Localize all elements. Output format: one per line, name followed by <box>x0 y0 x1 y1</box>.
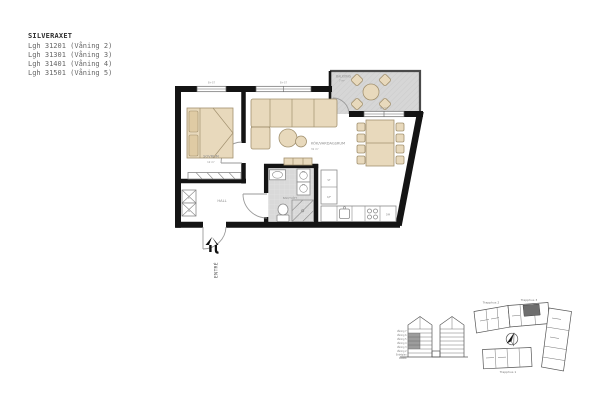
bathroom-door <box>243 194 267 218</box>
floorplan-drawing: BALKONG 7 m² <box>0 0 600 400</box>
window-dim-label: B+S7 <box>208 81 216 85</box>
floor-label: Våning 2 <box>397 350 407 353</box>
floor-label: Våning 3 <box>397 346 407 349</box>
media-bench <box>284 158 312 165</box>
entrance-door <box>203 227 226 249</box>
highlighted-unit <box>523 304 540 316</box>
floor-label: Våning 4 <box>397 342 407 345</box>
bed <box>187 108 233 158</box>
kitchen-counter: DM <box>321 206 396 222</box>
kitchen-tall-cabinets: ST K/F <box>321 170 337 204</box>
entrance-label: ENTRÉ <box>214 262 219 278</box>
floor-label: Våning 7 <box>397 330 407 333</box>
hall-label: HALL <box>217 199 226 203</box>
pillow <box>189 135 198 156</box>
balcony-label: BALKONG <box>336 75 352 79</box>
entrance: ENTRÉ <box>206 237 219 278</box>
building-top-left <box>474 306 510 334</box>
tall-cabinet-label: ST <box>327 178 331 182</box>
north-arrow <box>505 331 520 346</box>
floor-label: Entréplan <box>396 353 407 356</box>
stairwell-3-label: Trapphus 3 <box>520 298 538 302</box>
fridge-freezer-label: K/F <box>327 195 332 199</box>
washbasin <box>270 170 286 180</box>
bedroom-window <box>197 86 226 91</box>
toilet <box>277 204 289 222</box>
dishwasher-label: DM <box>386 213 390 217</box>
bedroom-area-label: 12 m² <box>207 160 215 164</box>
kitchen-living-area-label: 31 m² <box>311 147 319 151</box>
floor-label: Våning 6 <box>397 334 407 337</box>
floor-label: Källare <box>399 357 407 360</box>
washing-machine-label: TM <box>302 171 305 174</box>
elevation-floor-labels: Våning 7 Våning 6 Våning 5 Våning 4 Våni… <box>396 330 407 360</box>
dryer: TT <box>297 182 310 195</box>
window-dim-label: B+S7 <box>280 81 288 85</box>
floor-label: Våning 5 <box>397 338 407 341</box>
livingroom-window <box>256 86 311 91</box>
elevation-diagram: Våning 7 Våning 6 Våning 5 Våning 4 Våni… <box>396 317 468 361</box>
wardrobe-label: G <box>188 209 190 213</box>
balcony: BALKONG 7 m² <box>330 71 420 114</box>
page: SILVERAXET Lgh 31201 (Våning 2) Lgh 3130… <box>0 0 600 400</box>
site-plan: Trapphus 2 Trapphus 3 Trapphus 1 <box>474 298 572 374</box>
entrance-arrow-icon <box>206 237 219 254</box>
washing-machine: TM <box>297 169 310 182</box>
bedroom-wardrobe <box>188 173 241 180</box>
bedroom-label: SOVRUM <box>203 155 219 159</box>
coffee-tables <box>279 129 307 147</box>
dining-table <box>366 120 394 166</box>
pillow <box>189 111 198 132</box>
balcony-table <box>363 84 379 100</box>
hall-closets: L G <box>182 190 196 216</box>
bathroom: TM TT BAD/TVÄTT <box>268 168 313 221</box>
stairwell-2-label: Trapphus 2 <box>482 301 500 305</box>
window-dim-label: B+S7 <box>380 106 388 110</box>
stairwell-1-label: Trapphus 1 <box>499 370 517 374</box>
kitchen-living-label: KÖK/VARDAGSRUM <box>311 141 345 146</box>
balcony-area-label: 7 m² <box>339 79 345 83</box>
dining-window <box>364 111 404 116</box>
